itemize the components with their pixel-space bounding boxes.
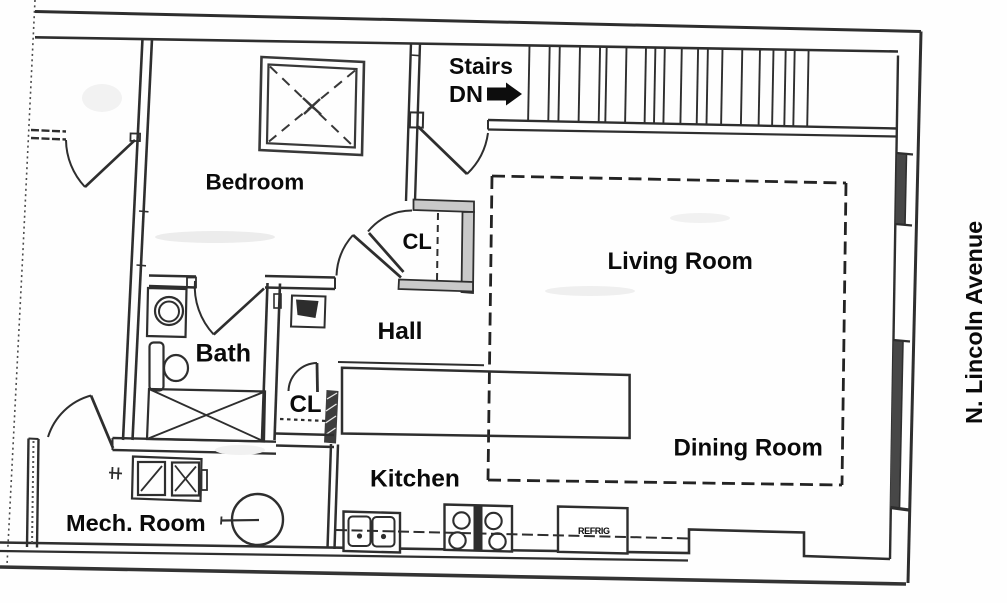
svg-text:Bath: Bath [196, 340, 252, 368]
svg-text:Stairs: Stairs [449, 53, 513, 79]
svg-text:CL: CL [403, 229, 432, 254]
svg-text:N. Lincoln Avenue: N. Lincoln Avenue [961, 221, 987, 424]
svg-text:Hall: Hall [378, 318, 423, 345]
svg-text:Bedroom: Bedroom [206, 170, 305, 195]
svg-text:Dining Room: Dining Room [674, 435, 823, 462]
svg-text:Kitchen: Kitchen [370, 465, 460, 492]
svg-text:Living Room: Living Room [608, 248, 753, 275]
svg-text:CL: CL [290, 391, 322, 418]
svg-text:DN: DN [449, 81, 483, 107]
svg-text:REFRIG: REFRIG [578, 526, 610, 536]
svg-text:Mech. Room: Mech. Room [66, 510, 206, 536]
